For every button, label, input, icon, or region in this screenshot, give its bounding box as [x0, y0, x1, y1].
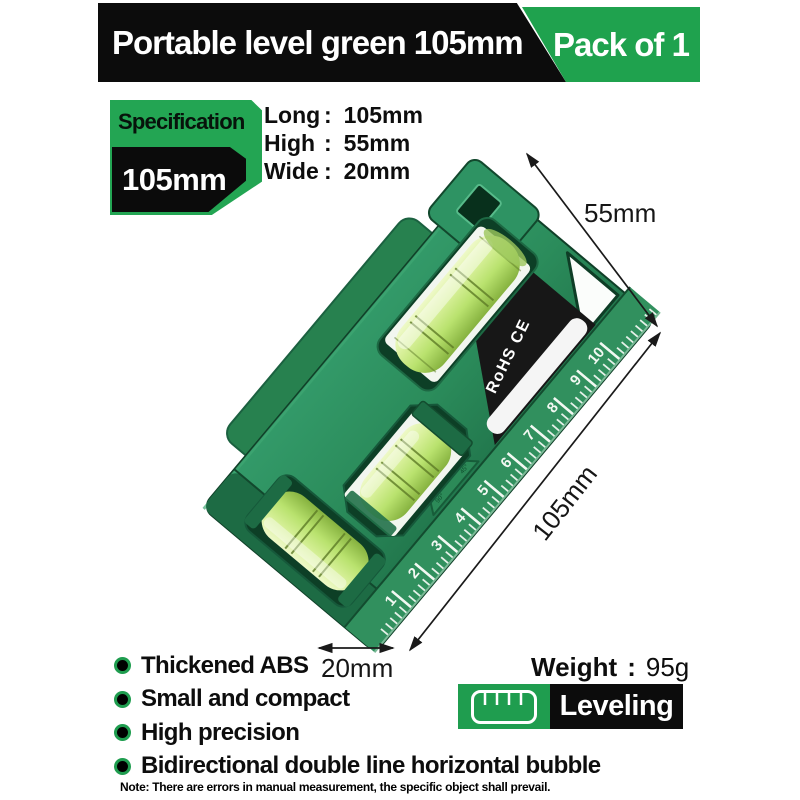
ruler-icon — [471, 690, 537, 724]
product-infographic: Portable level green 105mm Pack of 1 Spe… — [0, 0, 800, 800]
dimension-arrow-height — [527, 154, 657, 326]
leveling-badge: Leveling — [550, 684, 683, 729]
weight-label: Weight — [531, 652, 617, 682]
feature-item: Bidirectional double line horizontal bub… — [114, 750, 601, 784]
bullet-icon — [114, 758, 131, 775]
dimension-arrow-length — [410, 333, 660, 650]
dimension-label-height: 55mm — [584, 198, 656, 229]
leveling-badge-icon-box — [458, 684, 550, 729]
bullet-icon — [114, 691, 131, 708]
leveling-badge-label: Leveling — [560, 690, 674, 723]
bullet-icon — [114, 657, 131, 674]
weight-value: 95g — [646, 652, 689, 682]
weight-line: Weight:95g — [531, 652, 689, 683]
feature-item: Thickened ABS — [114, 649, 601, 683]
bullet-icon — [114, 724, 131, 741]
note-text: Note: There are errors in manual measure… — [120, 780, 550, 794]
